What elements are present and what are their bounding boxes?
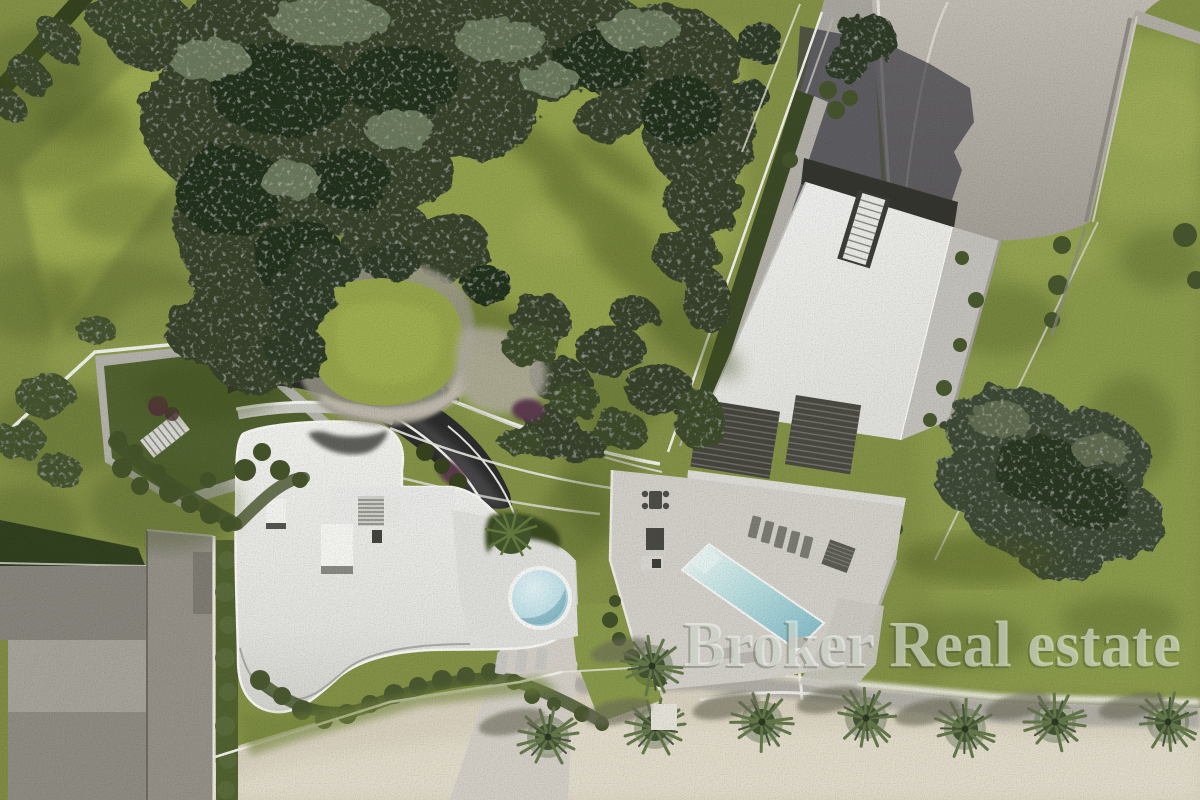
svg-text:Broker Real estate: Broker Real estate — [684, 608, 1181, 681]
